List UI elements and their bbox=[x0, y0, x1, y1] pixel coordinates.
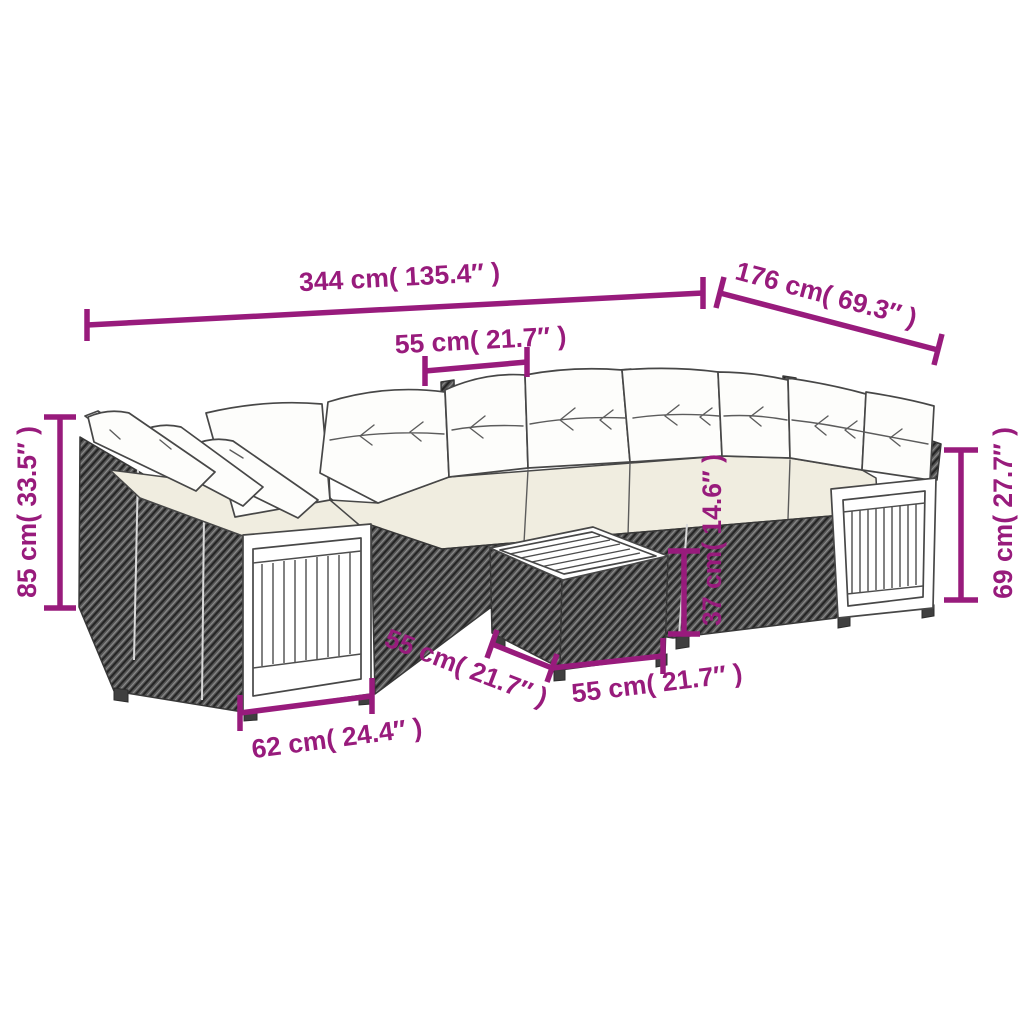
overall-width-label: 344 cm( 135.4″ ) bbox=[298, 257, 501, 297]
dimension-overall-width: 344 cm( 135.4″ ) bbox=[87, 257, 703, 341]
table-height-label: 37 cm( 14.6″ ) bbox=[697, 454, 727, 626]
arm-module-width-label: 62 cm( 24.4″ ) bbox=[250, 712, 424, 764]
dimension-overall-depth: 176 cm( 69.3″ ) bbox=[716, 256, 942, 365]
sofa-dimension-diagram: 344 cm( 135.4″ ) 176 cm( 69.3″ ) 55 cm( … bbox=[0, 0, 1024, 1024]
left-wood-slat-panel bbox=[243, 524, 371, 712]
back-height-label: 85 cm( 33.5″ ) bbox=[12, 426, 42, 598]
right-wood-slat-panel bbox=[831, 478, 936, 618]
diagram-canvas: 344 cm( 135.4″ ) 176 cm( 69.3″ ) 55 cm( … bbox=[0, 0, 1024, 1024]
dimension-arm-height: 69 cm( 27.7″ ) bbox=[944, 427, 1018, 600]
seat-width-label: 55 cm( 21.7″ ) bbox=[394, 321, 567, 360]
arm-height-label: 69 cm( 27.7″ ) bbox=[988, 427, 1018, 599]
dimension-back-height: 85 cm( 33.5″ ) bbox=[12, 417, 76, 608]
